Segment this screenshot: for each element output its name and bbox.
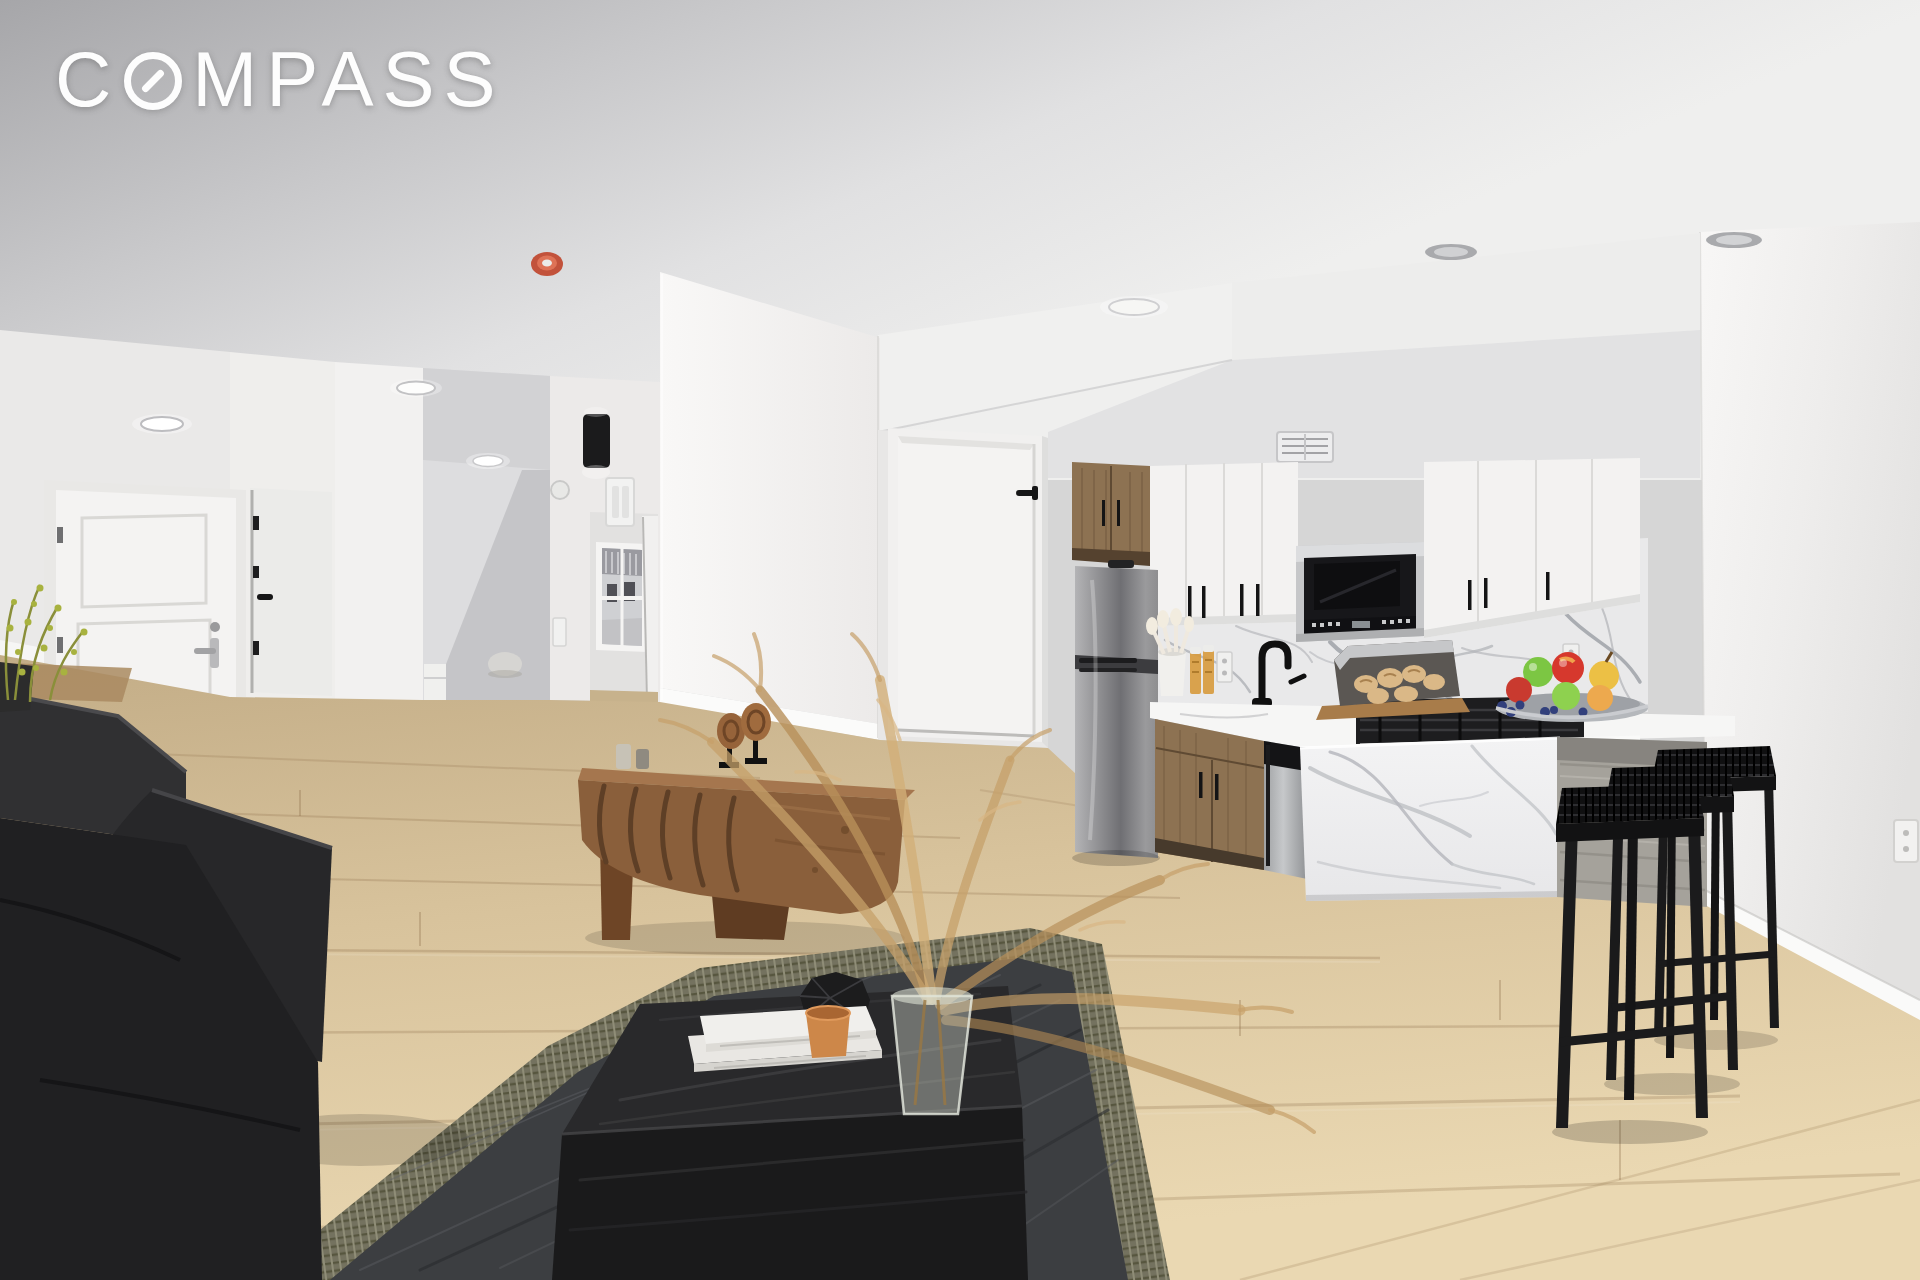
recessed-light-kitchen (1100, 296, 1168, 318)
recessed-light-hall-front (390, 379, 442, 397)
microwave (1296, 542, 1424, 642)
entry-closet-door (250, 488, 332, 696)
waterfall-island (1300, 738, 1560, 901)
brand-letters-rest: MPASS (192, 34, 504, 125)
base-cabinets (1155, 719, 1264, 870)
upper-cabinet-wood (1072, 462, 1150, 566)
foreground-wall (660, 272, 880, 740)
door-hinge (57, 527, 63, 543)
compass-watermark: C MPASS (55, 34, 505, 125)
light-switch (606, 478, 634, 526)
recessed-light-right-2 (1706, 232, 1762, 248)
air-vent (1277, 432, 1333, 462)
wall-outlet-right (1894, 820, 1918, 862)
brand-letter-c: C (55, 34, 120, 125)
microwave-display (1352, 621, 1370, 628)
closet-wall (878, 428, 1048, 748)
room-doorway (590, 512, 658, 704)
compass-needle-icon (141, 68, 166, 93)
fridge-hinge (1108, 560, 1134, 568)
glass-vase (892, 987, 972, 1114)
room-window (596, 542, 648, 652)
light-switch-hall (553, 618, 566, 646)
stair-newel (424, 664, 446, 700)
door-hinge (57, 637, 63, 653)
orange-cup (806, 1006, 850, 1058)
doorbell-chime (551, 481, 569, 499)
compass-o-icon (124, 52, 182, 110)
photo-canvas (0, 0, 1920, 1280)
recessed-light-entry (132, 414, 192, 434)
wall-sconce (582, 407, 610, 479)
recessed-light-right-1 (1425, 244, 1477, 260)
recessed-light-stair (466, 453, 510, 469)
listing-photo: C MPASS (0, 0, 1920, 1280)
hallway (423, 368, 550, 700)
closet-door (888, 428, 1042, 742)
refrigerator (1072, 560, 1160, 866)
smoke-detector (531, 252, 563, 276)
closet-door-handle-left (257, 594, 273, 600)
upper-cabinets-left (1150, 462, 1298, 626)
